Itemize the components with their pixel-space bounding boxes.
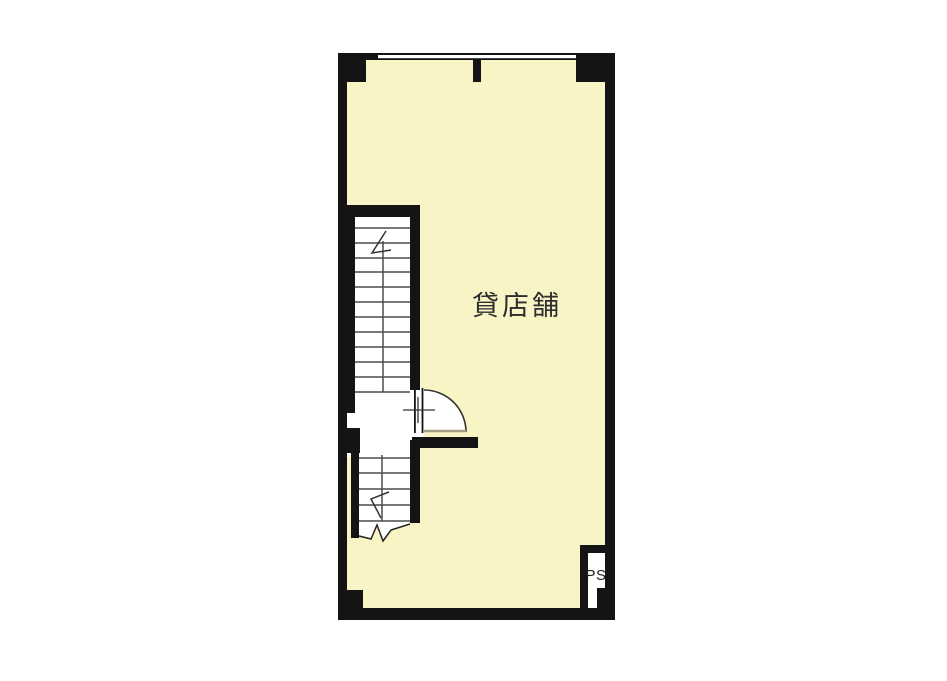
- pillar-mid-left: [338, 428, 360, 453]
- floor-plan-page: 貸店舗 PS: [0, 0, 947, 681]
- stair-wall-left: [338, 205, 355, 413]
- pipe-shaft-label: PS: [585, 567, 606, 584]
- lower-stair-wall-right: [410, 440, 420, 523]
- wall-bottom: [338, 608, 615, 620]
- floor-plan-drawing: 貸店舗 PS: [0, 0, 947, 681]
- door-side-wall: [412, 437, 478, 448]
- pillar-top-right: [576, 53, 615, 82]
- pillar-bottom-left: [338, 590, 363, 620]
- wall-right: [605, 53, 615, 620]
- lower-stair-wall-left: [351, 453, 359, 538]
- room-label: 貸店舗: [472, 291, 562, 321]
- pillar-top-left: [338, 53, 366, 82]
- shaft-inner-block: [597, 588, 605, 608]
- stair-wall-right: [410, 205, 420, 390]
- shaft-wall-top: [580, 545, 615, 553]
- window: [378, 53, 576, 60]
- window-inner-line: [378, 58, 576, 60]
- window-outer-line: [378, 53, 576, 55]
